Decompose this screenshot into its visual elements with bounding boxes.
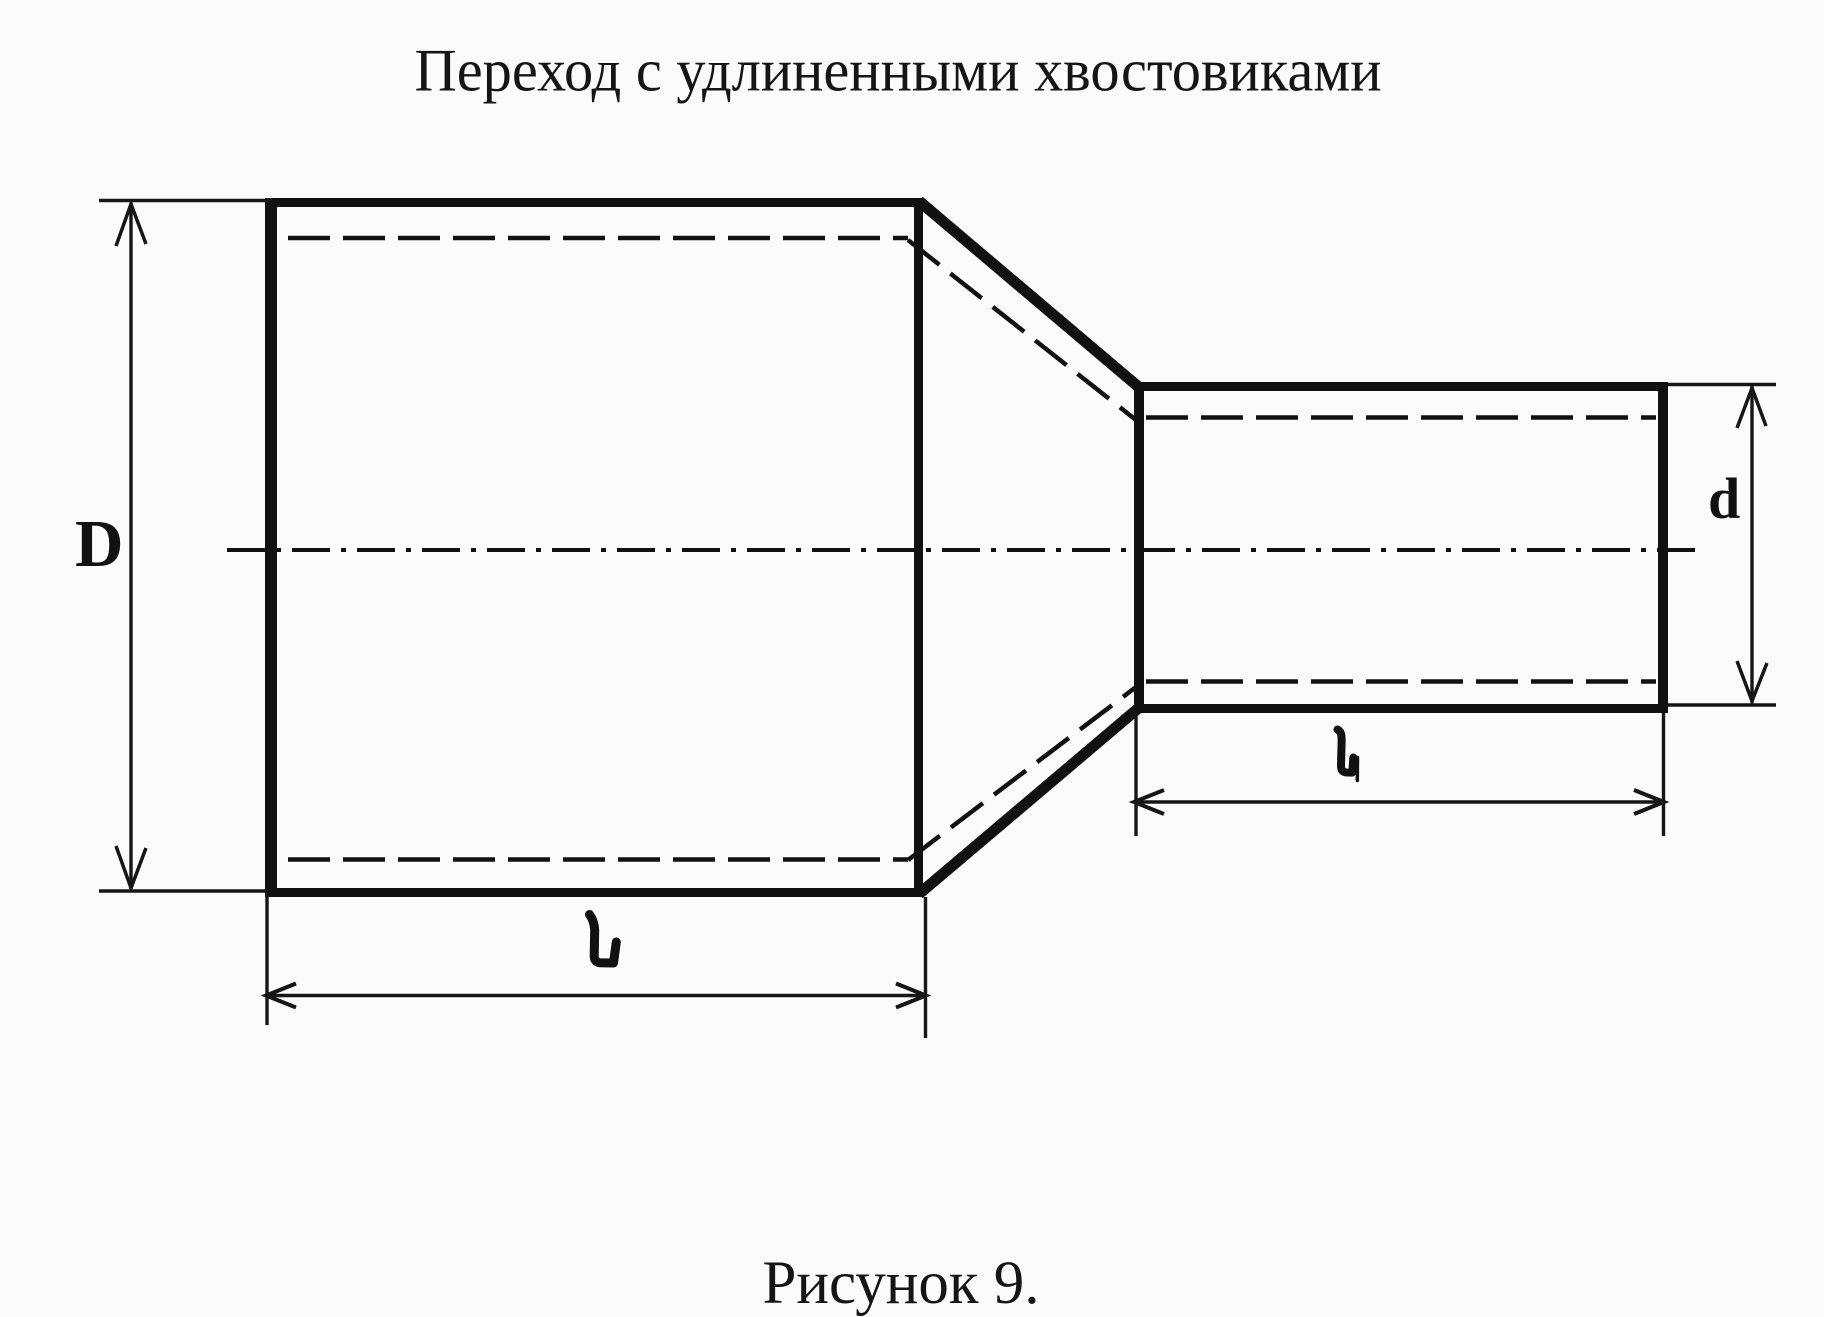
svg-text:d: d — [1708, 466, 1740, 531]
svg-text:Переход с удлиненными хвостови: Переход с удлиненными хвостовиками — [415, 38, 1382, 105]
svg-text:Рисунок 9.: Рисунок 9. — [762, 1250, 1039, 1317]
svg-text:D: D — [75, 507, 123, 581]
